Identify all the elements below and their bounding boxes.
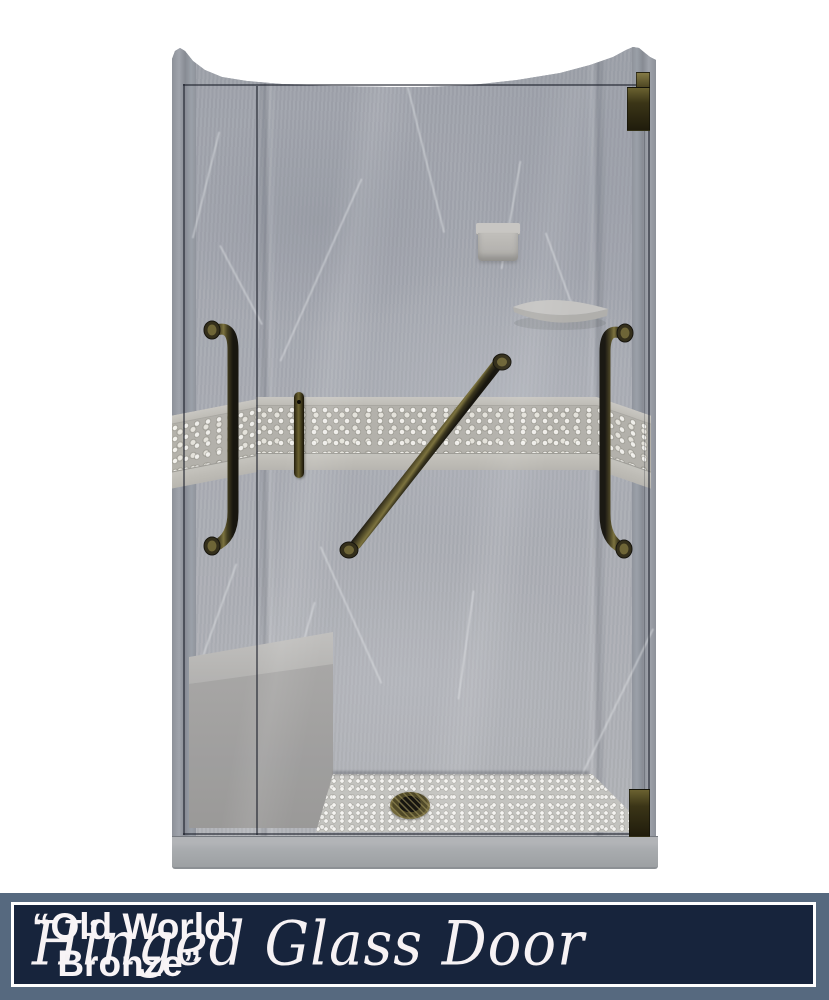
door-handle [294, 392, 304, 478]
glass-door-seam [256, 86, 258, 835]
glass-right-edge [648, 84, 650, 835]
door-hinge-top [627, 87, 650, 131]
glass-right-inner-edge [644, 86, 645, 833]
product-banner-inner: Hinged Glass Door “Old World Bronze” [11, 902, 816, 987]
finish-label-line2: Bronze” [32, 945, 227, 982]
product-banner: Hinged Glass Door “Old World Bronze” [0, 893, 829, 1000]
hinged-glass-door [183, 85, 649, 835]
finish-label: “Old World Bronze” [32, 908, 227, 982]
glass-left-edge [183, 84, 185, 835]
door-handle-hole [297, 400, 301, 404]
door-hinge-bottom [629, 789, 650, 837]
product-image: Hinged Glass Door “Old World Bronze” [0, 0, 829, 1000]
shower-pan [172, 836, 658, 869]
glass-top-edge [183, 84, 649, 86]
glass-bottom-edge [183, 833, 649, 835]
finish-label-line1: “Old World [32, 908, 227, 945]
